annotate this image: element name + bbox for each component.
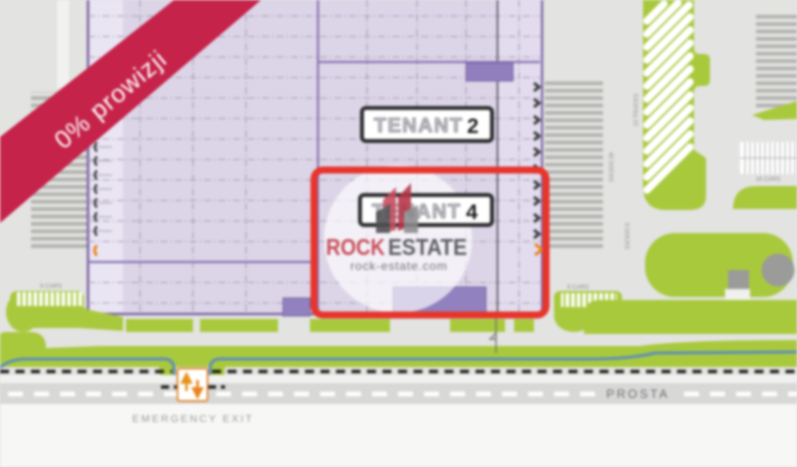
svg-text:2: 2: [467, 115, 479, 138]
svg-text:TENANT: TENANT: [374, 115, 462, 137]
svg-text:16 CARS: 16 CARS: [755, 177, 780, 183]
svg-text:10 TRUCKS: 10 TRUCKS: [634, 94, 640, 127]
svg-text:EMERGENCY EXIT: EMERGENCY EXIT: [132, 413, 254, 425]
svg-text:ESTATE: ESTATE: [388, 234, 467, 260]
svg-text:PROSTA: PROSTA: [606, 387, 669, 401]
svg-text:4: 4: [466, 201, 478, 224]
svg-text:9 DOCKS: 9 DOCKS: [623, 223, 629, 249]
svg-text:9 CARS: 9 CARS: [40, 284, 62, 290]
svg-text:40 DOCKS: 40 DOCKS: [607, 152, 613, 182]
svg-text:rock-estate.com: rock-estate.com: [350, 259, 447, 273]
svg-text:ROCK: ROCK: [326, 234, 385, 260]
svg-text:9 CARS: 9 CARS: [567, 285, 589, 291]
